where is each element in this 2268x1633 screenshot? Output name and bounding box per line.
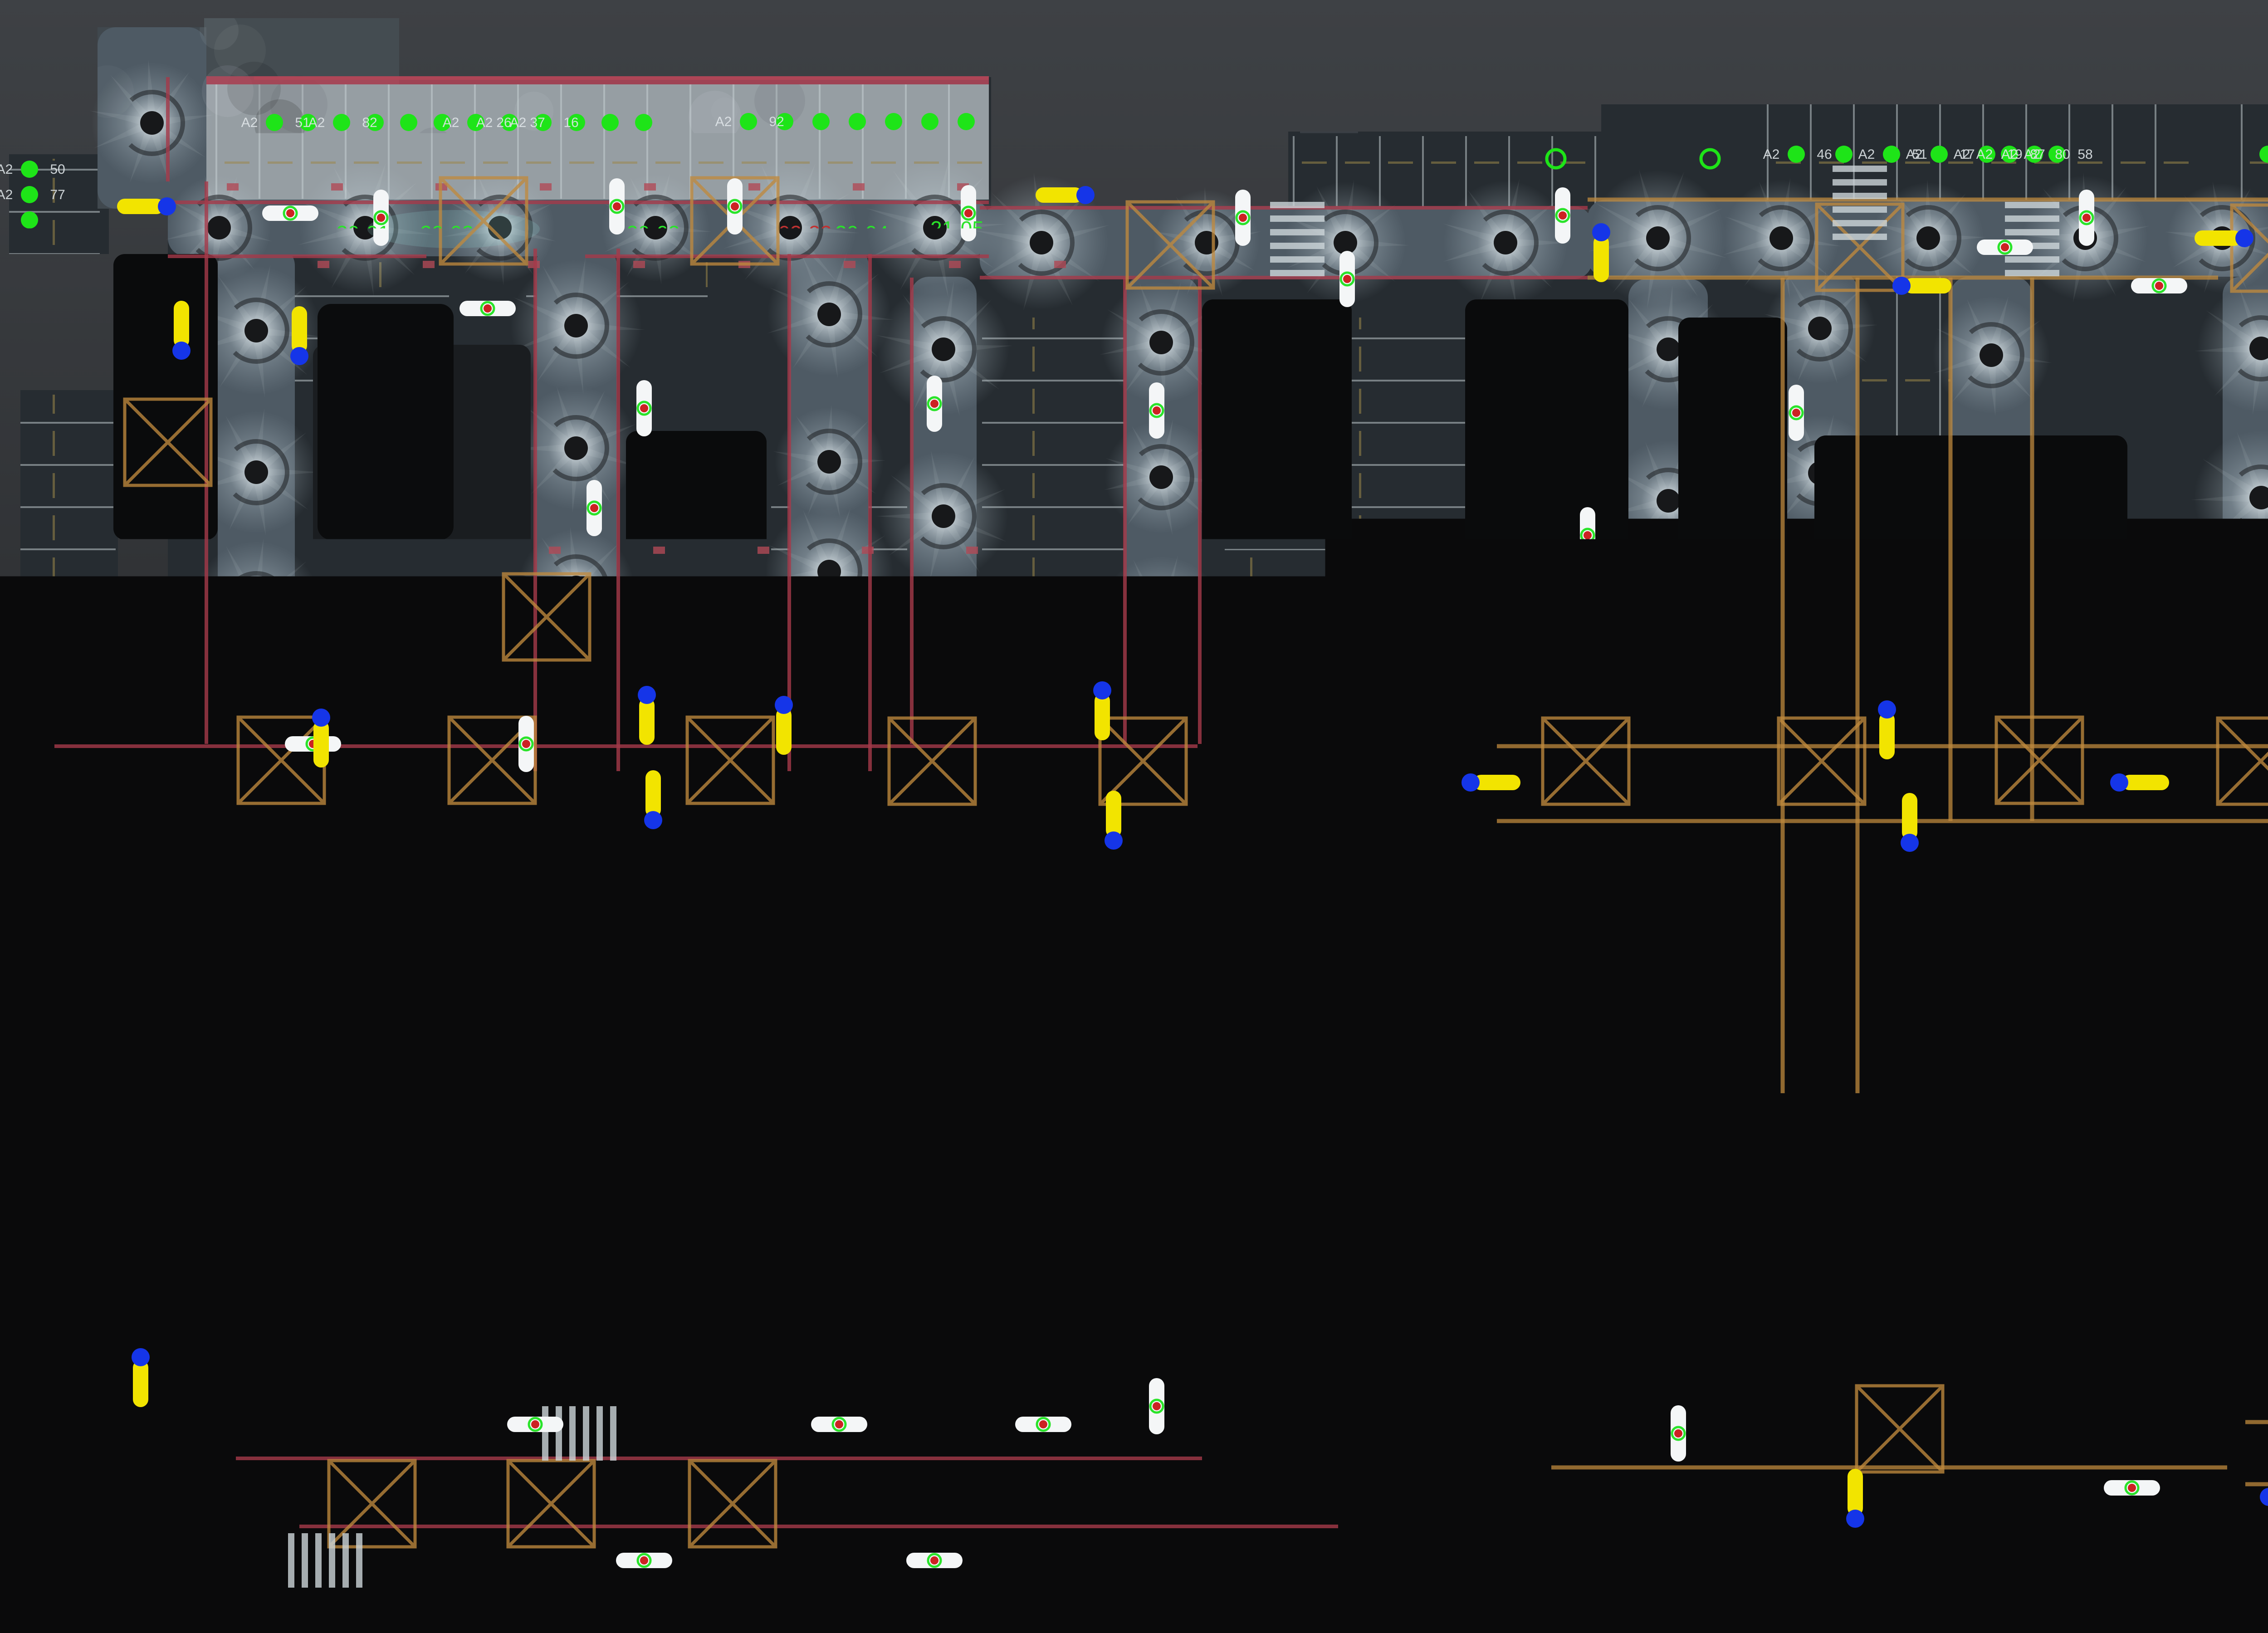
svg-text:20-18: 20-18 xyxy=(713,371,766,395)
svg-text:44: 44 xyxy=(1241,401,1256,416)
svg-text:20-22: 20-22 xyxy=(2237,412,2268,435)
svg-text:23-27: 23-27 xyxy=(944,1473,997,1497)
svg-text:A2: A2 xyxy=(645,1012,662,1027)
svg-text:A2: A2 xyxy=(645,971,662,986)
svg-text:71: 71 xyxy=(2211,644,2226,659)
svg-text:01-21: 01-21 xyxy=(1892,1460,1945,1483)
svg-text:68: 68 xyxy=(2211,680,2226,695)
svg-text:24-04: 24-04 xyxy=(1652,1296,1705,1320)
svg-text:21-07: 21-07 xyxy=(1479,271,1533,295)
svg-text:21: 21 xyxy=(503,1054,518,1069)
svg-text:96: 96 xyxy=(1442,1054,1457,1069)
svg-text:28: 28 xyxy=(358,1346,373,1361)
svg-text:A2: A2 xyxy=(1856,867,1873,882)
svg-text:A2: A2 xyxy=(1389,929,1406,944)
svg-text:46: 46 xyxy=(1817,147,1832,162)
svg-text:A2: A2 xyxy=(305,846,322,861)
svg-text:77: 77 xyxy=(50,187,65,202)
svg-text:20-29: 20-29 xyxy=(1779,571,1832,594)
svg-text:A2: A2 xyxy=(128,1347,145,1362)
svg-text:A2: A2 xyxy=(450,971,467,986)
svg-text:29: 29 xyxy=(1921,399,1936,414)
svg-text:81: 81 xyxy=(358,1012,373,1027)
svg-text:A2: A2 xyxy=(1863,1503,1880,1518)
svg-text:66: 66 xyxy=(1699,444,1714,459)
svg-text:01-08: 01-08 xyxy=(2146,793,2200,816)
svg-text:A2: A2 xyxy=(1183,971,1199,986)
svg-text:A2: A2 xyxy=(2024,147,2041,162)
svg-text:44: 44 xyxy=(1043,887,1058,902)
svg-text:15: 15 xyxy=(1422,700,1437,715)
svg-text:A2: A2 xyxy=(1636,862,1653,877)
svg-text:97: 97 xyxy=(1765,1006,1780,1021)
svg-text:90: 90 xyxy=(1241,356,1256,371)
svg-text:A2: A2 xyxy=(990,1346,1007,1361)
svg-text:A2: A2 xyxy=(476,115,493,130)
svg-text:20-19: 20-19 xyxy=(908,380,961,404)
svg-text:A2: A2 xyxy=(1976,147,1993,162)
svg-text:23-115: 23-115 xyxy=(358,1369,422,1393)
svg-text:01-02: 01-02 xyxy=(2073,276,2127,299)
svg-text:20-24: 20-24 xyxy=(917,457,970,481)
svg-text:56: 56 xyxy=(676,383,691,398)
svg-text:73: 73 xyxy=(957,513,972,528)
svg-text:A2: A2 xyxy=(990,887,1007,902)
svg-text:01-10: 01-10 xyxy=(1965,788,2018,812)
svg-text:02-21: 02-21 xyxy=(168,308,222,331)
svg-text:01-05: 01-05 xyxy=(436,1573,489,1597)
svg-text:22-110: 22-110 xyxy=(903,1020,966,1043)
svg-text:45: 45 xyxy=(676,279,691,293)
svg-text:22-07: 22-07 xyxy=(908,1169,961,1193)
svg-text:22-20: 22-20 xyxy=(2237,1006,2268,1030)
svg-text:92: 92 xyxy=(1966,1354,1981,1369)
svg-text:A2: A2 xyxy=(305,1012,322,1027)
svg-text:01-26: 01-26 xyxy=(1148,720,1202,744)
svg-text:20-44: 20-44 xyxy=(477,707,530,730)
svg-text:02-16: 02-16 xyxy=(2096,763,2150,787)
svg-text:A2: A2 xyxy=(443,1485,460,1500)
svg-text:A2: A2 xyxy=(1954,147,1970,162)
svg-text:A2: A2 xyxy=(2149,1127,2165,1142)
svg-text:22-12: 22-12 xyxy=(1130,1038,1183,1061)
svg-text:A2: A2 xyxy=(2058,401,2075,416)
svg-text:A2: A2 xyxy=(2058,310,2075,325)
svg-text:A2: A2 xyxy=(339,1335,356,1350)
svg-text:02-09: 02-09 xyxy=(2005,1532,2059,1556)
svg-text:22-03: 22-03 xyxy=(667,1002,721,1025)
svg-text:22-04: 22-04 xyxy=(1193,1015,1247,1039)
svg-text:A2: A2 xyxy=(486,1485,503,1500)
svg-text:A2: A2 xyxy=(1763,147,1780,162)
svg-text:72: 72 xyxy=(1962,1503,1977,1518)
svg-text:93: 93 xyxy=(181,1347,196,1362)
svg-text:82: 82 xyxy=(362,115,377,130)
svg-text:A2: A2 xyxy=(443,115,459,130)
svg-text:22-21: 22-21 xyxy=(254,1169,308,1193)
svg-text:A2: A2 xyxy=(450,929,467,944)
svg-text:66: 66 xyxy=(358,846,373,861)
svg-text:20-04: 20-04 xyxy=(835,221,889,245)
svg-text:22-09: 22-09 xyxy=(1130,1206,1183,1229)
svg-text:A2: A2 xyxy=(622,279,639,293)
svg-text:A2: A2 xyxy=(2157,680,2174,695)
svg-text:A2: A2 xyxy=(39,572,56,587)
svg-text:33: 33 xyxy=(869,846,884,861)
svg-text:A2: A2 xyxy=(1012,556,1029,571)
svg-text:A2: A2 xyxy=(1818,1354,1834,1369)
svg-text:34: 34 xyxy=(1921,355,1936,370)
svg-text:A2: A2 xyxy=(339,1245,356,1260)
svg-text:A2: A2 xyxy=(1772,1503,1789,1518)
svg-text:22-01: 22-01 xyxy=(227,988,281,1012)
svg-text:92: 92 xyxy=(769,114,784,129)
svg-text:73: 73 xyxy=(1442,971,1457,986)
svg-text:76: 76 xyxy=(1066,473,1081,488)
svg-text:A2: A2 xyxy=(2001,147,2018,162)
svg-text:36: 36 xyxy=(699,971,714,986)
svg-text:26: 26 xyxy=(669,1485,684,1500)
svg-text:A2: A2 xyxy=(0,238,13,253)
svg-text:65: 65 xyxy=(772,331,787,346)
svg-text:A2: A2 xyxy=(0,187,13,202)
svg-text:65: 65 xyxy=(1066,598,1081,613)
svg-text:20-23: 20-23 xyxy=(626,437,680,460)
svg-text:A2: A2 xyxy=(26,1508,43,1523)
svg-text:67: 67 xyxy=(2202,1127,2217,1142)
svg-text:A2: A2 xyxy=(1012,681,1029,696)
svg-text:15: 15 xyxy=(181,1304,196,1319)
svg-text:83: 83 xyxy=(1236,971,1251,986)
svg-text:50: 50 xyxy=(1066,681,1081,696)
svg-text:24: 24 xyxy=(93,572,108,587)
svg-text:A2: A2 xyxy=(1711,934,1728,949)
svg-text:01-22: 01-22 xyxy=(282,448,335,472)
svg-text:23-26: 23-26 xyxy=(812,1464,866,1488)
svg-text:23-28: 23-28 xyxy=(1393,1460,1447,1483)
svg-text:A2: A2 xyxy=(1999,1127,2016,1142)
svg-text:A2: A2 xyxy=(1711,1006,1728,1021)
svg-text:A2: A2 xyxy=(1012,347,1029,362)
svg-text:A2: A2 xyxy=(128,1304,145,1319)
svg-text:A2: A2 xyxy=(1906,147,1923,162)
svg-text:94: 94 xyxy=(392,1199,407,1214)
svg-text:21-05: 21-05 xyxy=(930,217,984,240)
svg-text:10: 10 xyxy=(392,1245,407,1260)
svg-text:A2: A2 xyxy=(1858,147,1875,162)
svg-text:A2: A2 xyxy=(1681,1503,1698,1518)
svg-text:20-10: 20-10 xyxy=(2005,280,2059,304)
svg-text:A2: A2 xyxy=(510,115,527,130)
svg-text:A2: A2 xyxy=(715,114,732,129)
svg-text:A2: A2 xyxy=(1232,564,1249,579)
svg-text:A2: A2 xyxy=(308,115,325,130)
svg-text:24-11: 24-11 xyxy=(1163,1460,1214,1483)
svg-text:37: 37 xyxy=(1043,1263,1058,1278)
svg-text:A2: A2 xyxy=(1488,970,1505,985)
svg-text:20-12: 20-12 xyxy=(2237,271,2268,295)
svg-text:A2: A2 xyxy=(1865,1354,1882,1369)
svg-text:02-11: 02-11 xyxy=(2192,1333,2244,1356)
svg-text:20-20: 20-20 xyxy=(1525,367,1578,390)
svg-text:A2: A2 xyxy=(904,434,920,449)
svg-text:A2: A2 xyxy=(1645,355,1662,370)
svg-text:A2: A2 xyxy=(1389,971,1406,986)
svg-text:A2: A2 xyxy=(339,1199,356,1214)
svg-text:A2: A2 xyxy=(1645,444,1662,459)
svg-text:10: 10 xyxy=(1236,887,1251,902)
svg-text:82: 82 xyxy=(1043,1054,1058,1069)
svg-text:A2: A2 xyxy=(815,971,832,986)
svg-text:20-43: 20-43 xyxy=(123,634,176,658)
svg-text:20-32: 20-32 xyxy=(182,589,235,612)
svg-text:84: 84 xyxy=(1043,1346,1058,1361)
svg-text:21-09: 21-09 xyxy=(1769,294,1823,318)
svg-text:23-29: 23-29 xyxy=(2028,1451,2082,1474)
svg-text:A2: A2 xyxy=(305,1138,322,1153)
svg-text:A2: A2 xyxy=(1366,435,1383,450)
svg-text:86: 86 xyxy=(200,787,215,802)
svg-text:01-16: 01-16 xyxy=(227,1233,281,1257)
svg-text:88: 88 xyxy=(1066,306,1081,321)
svg-text:A2: A2 xyxy=(1645,577,1662,592)
svg-text:21-45: 21-45 xyxy=(735,766,789,789)
svg-text:A2: A2 xyxy=(1232,700,1249,715)
svg-text:A2: A2 xyxy=(1818,1503,1834,1518)
svg-text:57: 57 xyxy=(2112,401,2126,416)
svg-text:22: 22 xyxy=(1442,1096,1457,1111)
svg-text:A2: A2 xyxy=(815,846,832,861)
svg-text:A2: A2 xyxy=(1012,598,1029,613)
svg-text:A2: A2 xyxy=(815,1012,832,1027)
svg-text:22-44: 22-44 xyxy=(118,811,172,835)
svg-text:25: 25 xyxy=(2152,826,2167,841)
svg-text:A2: A2 xyxy=(990,1054,1007,1069)
svg-text:69: 69 xyxy=(1286,564,1301,579)
svg-text:01-11: 01-11 xyxy=(1861,716,1913,739)
svg-text:20-03: 20-03 xyxy=(626,221,680,245)
svg-text:24: 24 xyxy=(358,1221,373,1236)
svg-text:A2: A2 xyxy=(1369,700,1385,715)
svg-text:43: 43 xyxy=(93,521,108,536)
svg-text:A2: A2 xyxy=(1908,1503,1925,1518)
svg-text:02-05: 02-05 xyxy=(1937,1523,1991,1547)
svg-text:23-07: 23-07 xyxy=(254,1333,308,1356)
svg-text:23-18: 23-18 xyxy=(1080,1342,1134,1365)
svg-text:58: 58 xyxy=(2077,147,2092,162)
svg-text:20-27: 20-27 xyxy=(1334,494,1388,517)
svg-text:A2: A2 xyxy=(2157,644,2174,659)
svg-text:52: 52 xyxy=(392,1335,407,1350)
svg-text:52: 52 xyxy=(1541,970,1556,985)
svg-text:A2: A2 xyxy=(1389,1054,1406,1069)
svg-text:16: 16 xyxy=(1699,577,1714,592)
svg-text:93: 93 xyxy=(1735,1503,1750,1518)
svg-text:68: 68 xyxy=(358,1138,373,1153)
svg-text:21-06: 21-06 xyxy=(1289,276,1342,299)
svg-text:31: 31 xyxy=(869,971,884,986)
svg-text:A2: A2 xyxy=(1389,846,1406,861)
svg-text:01-17: 01-17 xyxy=(191,448,244,472)
svg-text:A2: A2 xyxy=(1369,655,1385,670)
svg-text:01-01: 01-01 xyxy=(1470,716,1524,739)
svg-text:02-20: 02-20 xyxy=(1407,775,1460,798)
svg-text:A2: A2 xyxy=(305,929,322,944)
svg-text:A2: A2 xyxy=(241,115,258,130)
svg-text:20-02: 20-02 xyxy=(420,221,474,245)
svg-text:94: 94 xyxy=(1043,1138,1058,1153)
svg-text:72: 72 xyxy=(1420,352,1435,367)
svg-text:A2: A2 xyxy=(1369,610,1385,625)
svg-text:A2: A2 xyxy=(990,1179,1007,1194)
svg-text:29: 29 xyxy=(1420,435,1435,450)
svg-text:41: 41 xyxy=(1442,929,1457,944)
svg-text:A2: A2 xyxy=(616,1485,632,1500)
svg-text:A2: A2 xyxy=(572,1485,589,1500)
svg-text:13: 13 xyxy=(1690,862,1705,877)
svg-text:81: 81 xyxy=(1420,477,1435,492)
svg-text:20-11: 20-11 xyxy=(2124,298,2176,322)
svg-text:A2: A2 xyxy=(1366,352,1383,367)
svg-text:A2: A2 xyxy=(1867,399,1884,414)
svg-text:46: 46 xyxy=(772,383,787,398)
svg-text:A2: A2 xyxy=(990,1138,1007,1153)
svg-text:23-25: 23-25 xyxy=(508,1464,562,1488)
svg-text:A2: A2 xyxy=(1187,401,1204,416)
svg-text:20-28: 20-28 xyxy=(1525,543,1578,567)
svg-text:A2: A2 xyxy=(450,1054,467,1069)
svg-text:43: 43 xyxy=(1066,347,1081,362)
svg-text:20-17: 20-17 xyxy=(227,425,281,449)
svg-text:50: 50 xyxy=(1066,556,1081,571)
svg-text:63: 63 xyxy=(1236,1096,1251,1111)
svg-text:89: 89 xyxy=(181,1390,196,1405)
svg-text:01-15: 01-15 xyxy=(626,716,680,739)
svg-text:23-13: 23-13 xyxy=(1769,1206,1823,1229)
svg-text:73: 73 xyxy=(1422,655,1437,670)
svg-text:01-14: 01-14 xyxy=(1153,761,1206,785)
svg-text:31: 31 xyxy=(1066,640,1081,655)
svg-text:50: 50 xyxy=(957,355,972,370)
svg-text:26: 26 xyxy=(957,434,972,449)
svg-text:A2: A2 xyxy=(1867,355,1884,370)
svg-text:A2: A2 xyxy=(1187,356,1204,371)
svg-text:A2: A2 xyxy=(719,331,735,346)
svg-text:16: 16 xyxy=(563,115,578,130)
svg-text:75: 75 xyxy=(869,1012,884,1027)
svg-text:65: 65 xyxy=(50,238,65,253)
svg-text:19: 19 xyxy=(1442,846,1457,861)
svg-text:A2: A2 xyxy=(2098,826,2115,841)
svg-text:A2: A2 xyxy=(990,1263,1007,1278)
svg-text:02-23: 02-23 xyxy=(1035,278,1088,302)
svg-text:A2: A2 xyxy=(39,470,56,485)
svg-text:A2: A2 xyxy=(305,1096,322,1111)
svg-text:02-22: 02-22 xyxy=(778,221,832,245)
svg-text:28: 28 xyxy=(93,470,108,485)
svg-text:25: 25 xyxy=(503,929,518,944)
svg-text:22-18: 22-18 xyxy=(1779,1038,1832,1061)
svg-text:20-40: 20-40 xyxy=(2264,562,2268,585)
svg-text:67: 67 xyxy=(79,1508,94,1523)
svg-text:65: 65 xyxy=(1286,700,1301,715)
svg-text:A2: A2 xyxy=(1366,477,1383,492)
svg-text:80: 80 xyxy=(2055,147,2070,162)
svg-text:A2: A2 xyxy=(305,1221,322,1236)
svg-text:A2: A2 xyxy=(622,383,639,398)
svg-text:A2: A2 xyxy=(1012,640,1029,655)
svg-text:20-01: 20-01 xyxy=(336,221,390,245)
svg-text:50: 50 xyxy=(50,162,65,177)
svg-text:91: 91 xyxy=(1699,355,1714,370)
svg-text:A2: A2 xyxy=(39,521,56,536)
svg-text:A2: A2 xyxy=(1913,1354,1930,1369)
svg-text:46: 46 xyxy=(1765,934,1780,949)
svg-text:A2: A2 xyxy=(904,513,920,528)
svg-text:20-25: 20-25 xyxy=(917,580,970,603)
svg-text:02-19: 02-19 xyxy=(1525,788,1578,812)
svg-text:A2: A2 xyxy=(904,355,920,370)
svg-text:A2: A2 xyxy=(1389,1096,1406,1111)
svg-text:23-10: 23-10 xyxy=(1652,1092,1705,1116)
svg-text:84: 84 xyxy=(1043,1179,1058,1194)
svg-text:A2: A2 xyxy=(1183,887,1199,902)
svg-text:A2: A2 xyxy=(1012,306,1029,321)
svg-text:37: 37 xyxy=(530,115,545,130)
svg-text:24-06: 24-06 xyxy=(1937,1319,1991,1343)
svg-text:73: 73 xyxy=(358,1179,373,1194)
svg-text:55: 55 xyxy=(358,929,373,944)
svg-text:A2: A2 xyxy=(146,787,163,802)
svg-text:A2: A2 xyxy=(0,162,13,177)
svg-text:21-316: 21-316 xyxy=(1455,480,1520,504)
svg-text:72: 72 xyxy=(358,1096,373,1111)
svg-text:22-16: 22-16 xyxy=(1506,1024,1560,1048)
svg-text:A2: A2 xyxy=(1183,929,1199,944)
svg-text:20-41: 20-41 xyxy=(2082,580,2136,603)
svg-text:24: 24 xyxy=(1422,610,1437,625)
svg-text:77: 77 xyxy=(1236,929,1251,944)
svg-text:72: 72 xyxy=(2053,1127,2068,1142)
svg-text:21-26: 21-26 xyxy=(1134,525,1188,549)
svg-text:A2: A2 xyxy=(128,1390,145,1405)
svg-text:01-04: 01-04 xyxy=(1983,716,2036,739)
svg-text:54: 54 xyxy=(503,971,518,986)
svg-text:A2: A2 xyxy=(1183,1096,1199,1111)
svg-text:A2: A2 xyxy=(1012,473,1029,488)
svg-text:97: 97 xyxy=(1910,867,1925,882)
svg-text:01-12: 01-12 xyxy=(763,720,816,744)
